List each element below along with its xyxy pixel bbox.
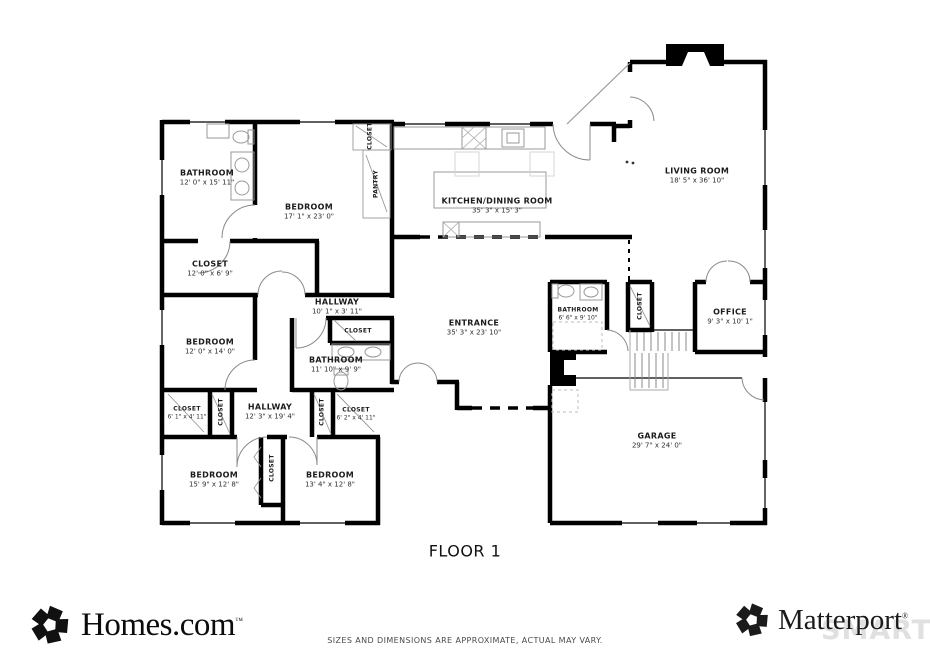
- room-label: CLOSET6' 1" x 4' 11": [167, 406, 206, 421]
- room-name: BEDROOM: [305, 471, 355, 481]
- room-label: CLOSET: [366, 122, 374, 149]
- room-name: CLOSET: [636, 292, 644, 319]
- matterport-logo: SMART M L S Matterport®: [733, 601, 918, 647]
- disclaimer-text: SIZES AND DIMENSIONS ARE APPROXIMATE, AC…: [327, 636, 602, 645]
- room-dimensions: 15' 9" x 12' 8": [189, 481, 239, 490]
- room-dimensions: 35' 3" x 23' 10": [447, 329, 502, 338]
- windows: [162, 62, 765, 523]
- room-name: ENTRANCE: [447, 319, 502, 329]
- floor-label: FLOOR 1: [429, 542, 502, 561]
- room-label: CLOSET: [636, 292, 644, 319]
- room-label: BEDROOM15' 9" x 12' 8": [189, 471, 239, 490]
- room-label: BEDROOM12' 0" x 14' 0": [185, 338, 235, 357]
- room-name: GARAGE: [632, 432, 682, 442]
- room-label: ENTRANCE35' 3" x 23' 10": [447, 319, 502, 338]
- matterport-wordmark-row: Matterport®: [733, 601, 908, 639]
- room-name: HALLWAY: [245, 403, 295, 413]
- room-label: CLOSET12' 0" x 6' 9": [187, 260, 233, 279]
- room-name: CLOSET: [268, 454, 276, 481]
- room-name: CLOSET: [336, 407, 375, 415]
- room-name: BATHROOM: [309, 356, 363, 366]
- room-name: BEDROOM: [284, 203, 334, 213]
- room-name: HALLWAY: [312, 298, 362, 308]
- floorplan-page: BATHROOM12' 0" x 15' 11"BEDROOM17' 1" x …: [0, 0, 930, 657]
- room-name: CLOSET: [318, 398, 326, 425]
- room-name: CLOSET: [217, 398, 225, 425]
- room-label: BATHROOM12' 0" x 15' 11": [180, 169, 235, 188]
- homes-com-logo: Homes.com™: [28, 603, 242, 647]
- trademark-symbol: ™: [235, 616, 242, 625]
- room-dimensions: 11' 10" x 9' 9": [309, 366, 363, 375]
- room-label: CLOSET: [344, 327, 371, 335]
- room-name: BATHROOM: [557, 307, 598, 315]
- room-label: CLOSET: [318, 398, 326, 425]
- matterport-pinwheel-icon: [733, 601, 771, 639]
- room-name: CLOSET: [167, 406, 206, 414]
- room-dimensions: 10' 1" x 3' 11": [312, 308, 362, 317]
- room-name: BATHROOM: [180, 169, 235, 179]
- room-name: CLOSET: [187, 260, 233, 270]
- homes-com-wordmark: Homes.com™: [81, 607, 242, 644]
- room-dimensions: 12' 3" x 19' 4": [245, 413, 295, 422]
- room-label: BATHROOM11' 10" x 9' 9": [309, 356, 363, 375]
- room-name: LIVING ROOM: [665, 167, 729, 177]
- room-dimensions: 6' 1" x 4' 11": [167, 413, 206, 421]
- room-label: LIVING ROOM18' 5" x 36' 10": [665, 167, 729, 186]
- room-dimensions: 12' 0" x 14' 0": [185, 348, 235, 357]
- room-name: OFFICE: [707, 308, 753, 318]
- room-label: PANTRY: [372, 170, 380, 198]
- room-name: CLOSET: [366, 122, 374, 149]
- stairs: [630, 330, 686, 390]
- room-label: HALLWAY10' 1" x 3' 11": [312, 298, 362, 317]
- room-name: KITCHEN/DINING ROOM: [441, 197, 552, 207]
- homes-com-pinwheel-icon: [28, 603, 72, 647]
- room-label: CLOSET6' 2" x 4' 11": [336, 407, 375, 422]
- room-dimensions: 29' 7" x 24' 0": [632, 442, 682, 451]
- room-name: PANTRY: [372, 170, 380, 198]
- room-dimensions: 6' 6" x 9' 10": [557, 314, 598, 322]
- room-label: KITCHEN/DINING ROOM35' 3" x 15' 3": [441, 197, 552, 216]
- room-dimensions: 12' 0" x 6' 9": [187, 270, 233, 279]
- room-label: CLOSET: [217, 398, 225, 425]
- room-dimensions: 18' 5" x 36' 10": [665, 177, 729, 186]
- registered-symbol: ®: [902, 611, 908, 620]
- matterport-wordmark: Matterport®: [778, 604, 908, 637]
- room-dimensions: 9' 3" x 10' 1": [707, 318, 753, 327]
- room-dimensions: 13' 4" x 12' 8": [305, 481, 355, 490]
- room-dimensions: 6' 2" x 4' 11": [336, 414, 375, 422]
- room-label: GARAGE29' 7" x 24' 0": [632, 432, 682, 451]
- room-dimensions: 17' 1" x 23' 0": [284, 213, 334, 222]
- footer: Homes.com™ SIZES AND DIMENSIONS ARE APPR…: [0, 601, 930, 657]
- room-label: OFFICE9' 3" x 10' 1": [707, 308, 753, 327]
- room-dimensions: 35' 3" x 15' 3": [441, 207, 552, 216]
- room-label: HALLWAY12' 3" x 19' 4": [245, 403, 295, 422]
- room-name: CLOSET: [344, 327, 371, 335]
- room-label: CLOSET: [268, 454, 276, 481]
- room-label: BEDROOM17' 1" x 23' 0": [284, 203, 334, 222]
- room-dimensions: 12' 0" x 15' 11": [180, 179, 235, 188]
- room-name: BEDROOM: [189, 471, 239, 481]
- room-label: BEDROOM13' 4" x 12' 8": [305, 471, 355, 490]
- room-name: BEDROOM: [185, 338, 235, 348]
- room-label: BATHROOM6' 6" x 9' 10": [557, 307, 598, 322]
